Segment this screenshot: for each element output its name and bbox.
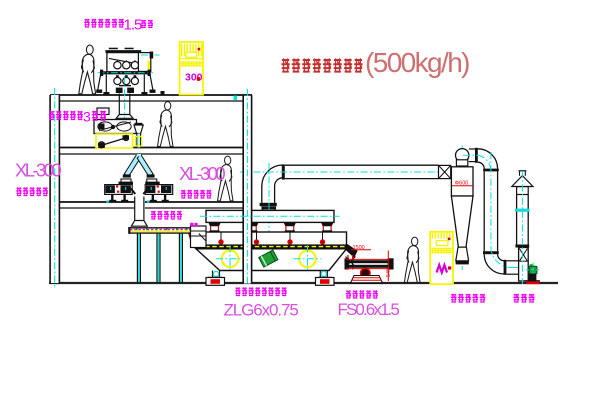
svg-text:ZLG6x0.75: ZLG6x0.75 [224, 301, 299, 320]
svg-text:1500: 1500 [353, 245, 365, 251]
svg-text:545: 545 [386, 268, 392, 277]
svg-text:XL-300: XL-300 [179, 163, 225, 184]
svg-text:300: 300 [185, 72, 203, 84]
svg-text:FS0.6x1.5: FS0.6x1.5 [338, 300, 400, 319]
svg-text:XL-300: XL-300 [15, 160, 61, 181]
svg-text:3: 3 [83, 109, 91, 125]
svg-text:(500kg/h): (500kg/h) [365, 47, 469, 78]
svg-text:1.5: 1.5 [124, 17, 143, 34]
svg-text:Φ600: Φ600 [455, 181, 469, 187]
